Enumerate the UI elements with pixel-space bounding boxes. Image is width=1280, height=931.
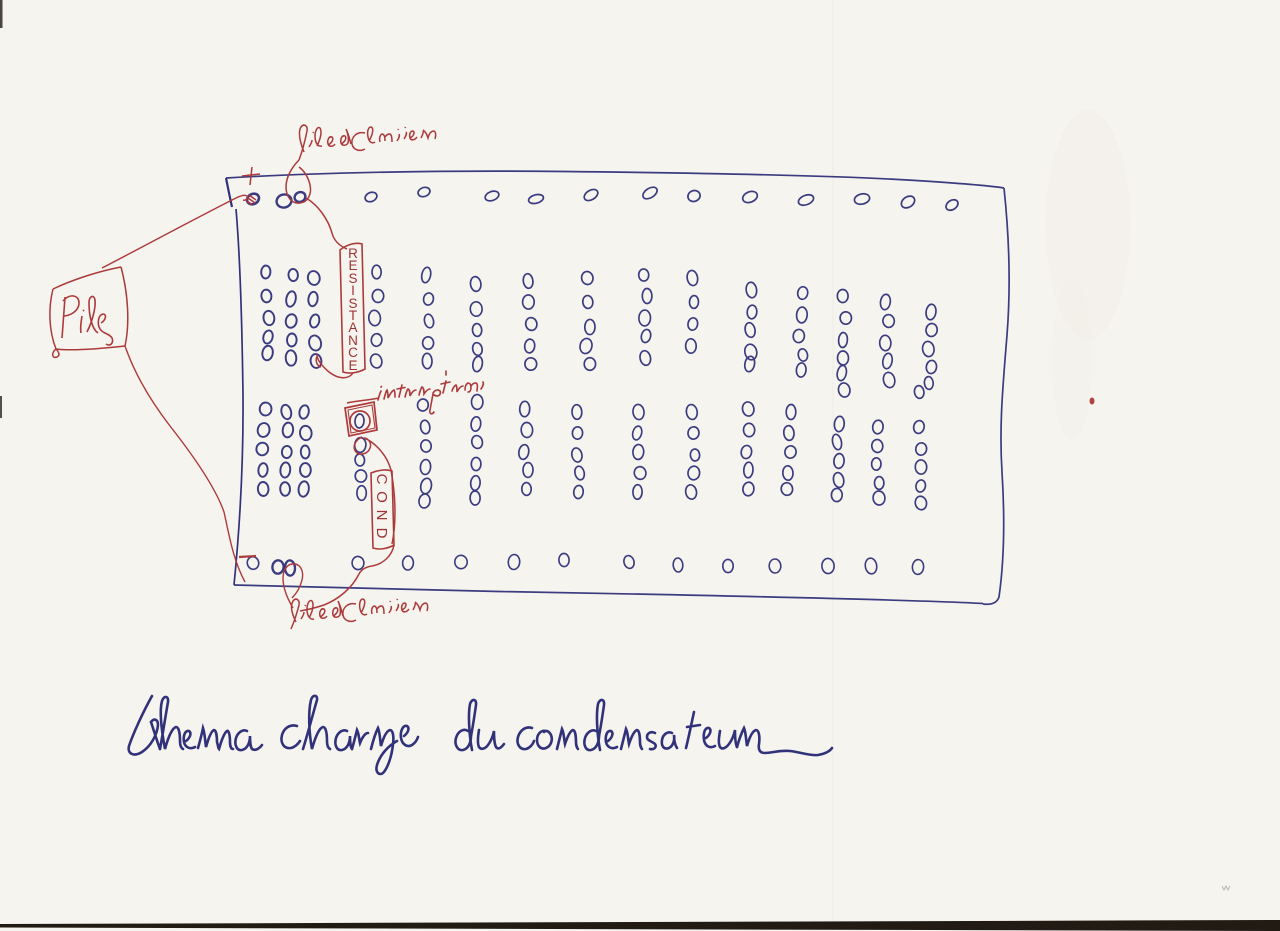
svg-text:C: C [373,474,390,485]
svg-text:N: N [373,510,390,521]
svg-text:O: O [373,491,390,503]
svg-text:D: D [373,528,390,539]
svg-text:E: E [348,358,357,373]
